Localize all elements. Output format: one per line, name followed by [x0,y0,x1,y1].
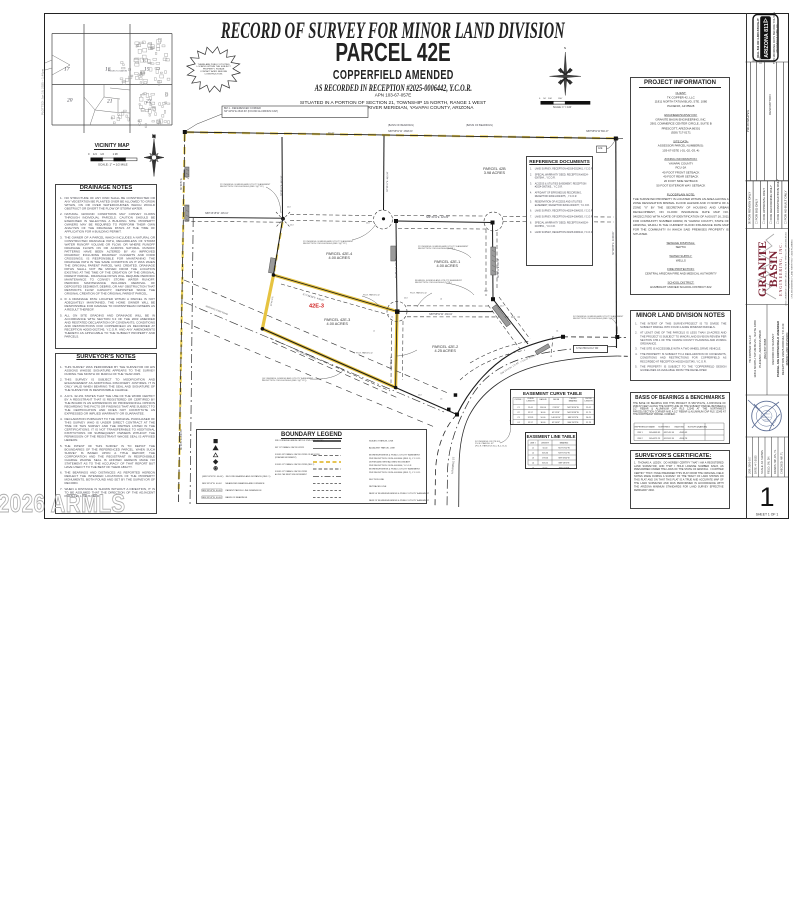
svg-text:BY: BY [752,58,756,62]
svg-text:(602) 867-5088: (602) 867-5088 [763,338,767,359]
svg-text:RECORD OF SURVEY: RECORD OF SURVEY [771,333,775,364]
svg-text:11811 NORTH TATUM BLVD., SUITE: 11811 NORTH TATUM BLVD., SUITE 1080 [753,320,757,378]
svg-text:MINOR LAND DIVISION: MINOR LAND DIVISION [785,333,789,366]
svg-text:2901 COMMERCE CENTER CIRCLE, S: 2901 COMMERCE CENTER CIRCLE, SUITE B • P… [785,231,788,305]
svg-text:SCALE: AS SHOWN: SCALE: AS SHOWN [760,450,764,474]
svg-text:TWO WORKING DAYS BEFORE YOU DI: TWO WORKING DAYS BEFORE YOU DIG [772,12,776,64]
svg-text:DIAL 811 OR 1-800-STAKE-IT: DIAL 811 OR 1-800-STAKE-IT [756,18,760,58]
svg-text:☒ FOR REVIEW ONLY: ☒ FOR REVIEW ONLY [747,192,751,224]
svg-text:SHEET 1 OF 1: SHEET 1 OF 1 [756,513,779,517]
svg-text:PARCEL 42E COPPERFIELD AMENDED: PARCEL 42E COPPERFIELD AMENDED [776,320,780,377]
svg-text:ENGINEERING, INC.: ENGINEERING, INC. [778,242,784,296]
svg-text:JOB: 2501-107: JOB: 2501-107 [748,456,752,474]
svg-text:1: 1 [759,482,774,512]
svg-text:ARIZONA BLUE STAKE, INC.: ARIZONA BLUE STAKE, INC. [775,23,778,53]
svg-text:PHOENIX, ARIZONA 85028: PHOENIX, ARIZONA 85028 [758,330,762,368]
svg-text:REVISIONS: REVISIONS [745,110,750,132]
svg-text:LEDDY: LEDDY [763,420,770,422]
svg-text:32923: 32923 [764,413,771,416]
svg-text:DATE: 4-7-2025: DATE: 4-7-2025 [754,455,758,474]
svg-text:FIELD: JM, DN: FIELD: JM, DN [767,456,771,474]
svg-text:CHECKED: MP, TL: CHECKED: MP, TL [780,451,784,474]
svg-text:☐ FOR AS-BUILT ONLY: ☐ FOR AS-BUILT ONLY [783,190,787,224]
svg-text:TK COPPER 42 LLC: TK COPPER 42 LLC [748,334,752,363]
svg-text:PHONE (928) 717-0171 • FAX (92: PHONE (928) 717-0171 • FAX (928) 717-018… [788,247,791,291]
svg-text:☐ FOR CONSTRUCTION ONLY: ☐ FOR CONSTRUCTION ONLY [776,179,780,224]
svg-text:DESCRIPTION: DESCRIPTION [768,94,772,115]
svg-text:DRAWN: MP, DN, TL: DRAWN: MP, DN, TL [773,449,777,474]
svg-text:ARIZONA 811: ARIZONA 811 [764,23,770,58]
svg-text:CIVIL ENGINEERING • LAND SURVE: CIVIL ENGINEERING • LAND SURVEYING • LAN… [791,239,794,298]
svg-text:☐ FOR BID ONLY: ☐ FOR BID ONLY [755,199,759,224]
svg-text:☐ FOR APPROVAL ONLY: ☐ FOR APPROVAL ONLY [762,188,766,224]
svg-text:☐ FOR RECORDING ONLY: ☐ FOR RECORDING ONLY [769,185,773,224]
svg-text:DATE: DATE [759,56,763,64]
